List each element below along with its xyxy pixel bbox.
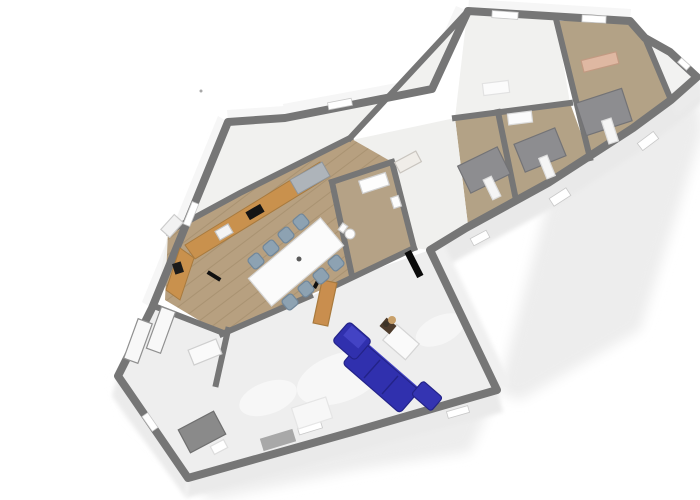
corridor-rug (482, 80, 509, 95)
dresser-b (507, 111, 532, 125)
plant-top (383, 321, 389, 327)
window-top-2 (582, 15, 606, 23)
wall-seam (350, 12, 467, 138)
plank-line (0, 0, 345, 107)
artifact-speck (200, 90, 203, 93)
plank-line (0, 0, 338, 97)
plant-pot (388, 316, 396, 324)
toilet-bowl (345, 229, 355, 239)
floorplan-image (0, 0, 700, 500)
table-centerpiece (297, 257, 302, 262)
plank-line (0, 0, 331, 87)
window-top-1 (492, 11, 518, 20)
plank-line (0, 0, 352, 116)
floorplan-svg (0, 0, 700, 500)
